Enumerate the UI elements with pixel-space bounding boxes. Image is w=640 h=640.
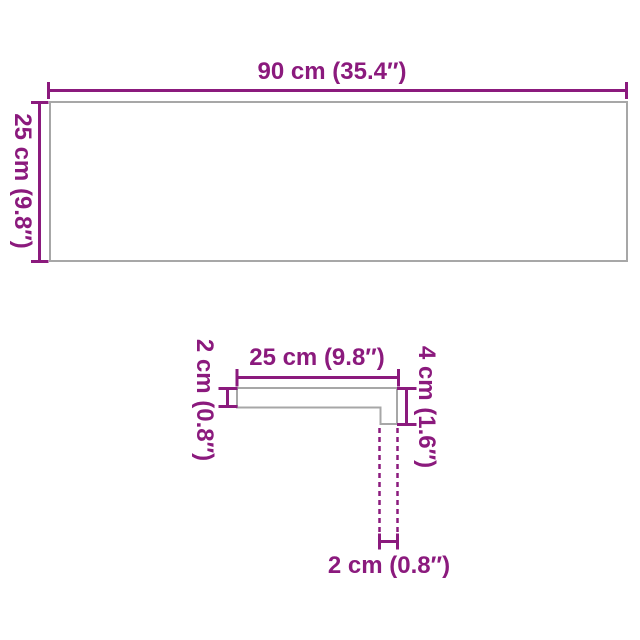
profile-thickness-dimension-line [219, 389, 238, 407]
profile-outline [237, 388, 397, 424]
panel-width-label: 90 cm (35.4″) [258, 58, 407, 86]
panel-outline [50, 102, 627, 261]
profile-edge-thickness-label: 2 cm (0.8″) [328, 552, 450, 580]
profile-edge-height-label: 4 cm (1.6″) [412, 346, 440, 468]
panel-height-label: 25 cm (9.8″) [8, 113, 36, 249]
diagram-lines-layer [0, 0, 640, 640]
profile-thickness-label: 2 cm (0.8″) [190, 339, 218, 461]
profile-projection-dashed-lines [380, 428, 398, 533]
dimension-diagram: 90 cm (35.4″) 25 cm (9.8″) 25 cm (9.8″) … [0, 0, 640, 640]
profile-edge-thickness-dimension-line [380, 534, 398, 550]
profile-width-label: 25 cm (9.8″) [249, 344, 385, 372]
